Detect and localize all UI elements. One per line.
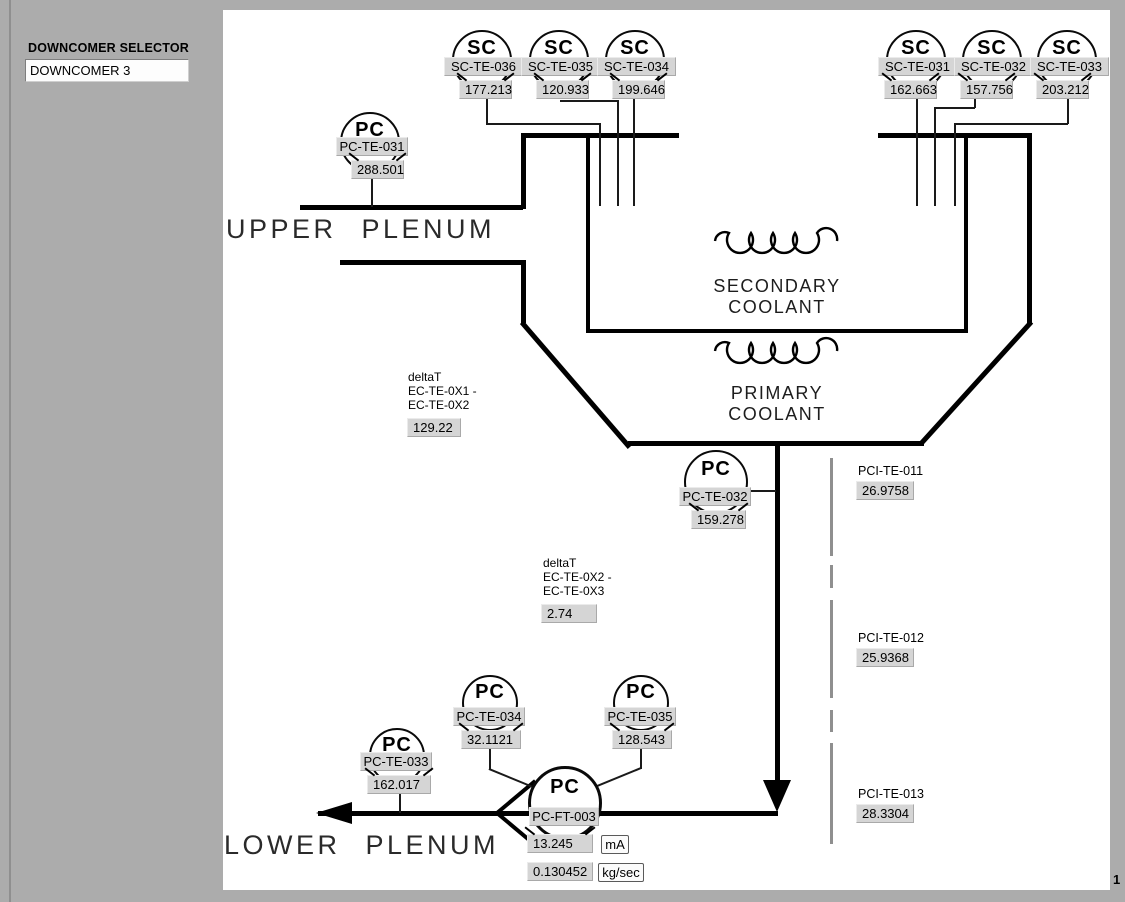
delta-t-2-line1: EC-TE-0X2 - [543,570,612,584]
wire-pc-te-034 [489,749,491,769]
primary-coolant-label: PRIMARY COOLANT [697,383,857,425]
wire-sc-te-036 [486,123,600,125]
sensor-value-pc-te-034: 32.1121 [461,730,521,749]
coil-secondary-icon [710,226,842,266]
sensor-tag-pc-ft-003: PC-FT-003 [529,807,599,826]
delta-t-1-label: deltaT EC-TE-0X1 - EC-TE-0X2 [408,370,477,412]
delta-t-1-line2: EC-TE-0X2 [408,398,477,412]
sensor-tag-sc-te-031: SC-TE-031 [878,57,957,76]
sensor-value-pc-ft-003-flow: 0.130452 [527,862,593,881]
wire-sc-te-033 [954,123,956,206]
sensor-symbol: PC [528,776,602,799]
delta-t-2-title: deltaT [543,556,612,570]
secondary-coolant-line1: SECONDARY [697,276,857,297]
primary-coolant-line2: COOLANT [697,404,857,425]
delta-t-2-value: 2.74 [541,604,597,623]
flow-arrow-down-icon [763,780,791,812]
pci-te-012-tag: PCI-TE-012 [858,631,924,645]
hx-inner-right [964,133,968,333]
wire-sc-te-036 [486,99,488,124]
hx-inner-left [586,133,590,333]
sensor-value-pc-te-033: 162.017 [367,775,431,794]
downcomer-selector-label: DOWNCOMER SELECTOR [28,41,189,55]
sensor-symbol: PC [684,458,748,481]
pci-te-013-tag: PCI-TE-013 [858,787,924,801]
wire-pc-te-035 [640,749,642,769]
wire-sc-te-036 [599,123,601,206]
sensor-tag-sc-te-033: SC-TE-033 [1030,57,1109,76]
sensor-value-pc-te-032: 159.278 [691,510,746,529]
wire-pc-te-033 [399,794,401,813]
pci-divider-segment [830,600,833,698]
sensor-tag-pc-te-033: PC-TE-033 [360,752,432,771]
sensor-tag-sc-te-032: SC-TE-032 [954,57,1033,76]
coil-primary-icon [710,336,842,376]
sensor-value-pc-ft-003-current: 13.245 [527,834,593,853]
sensor-value-sc-te-034: 199.646 [612,80,665,99]
wire-sc-te-035 [617,100,619,206]
sensor-symbol: PC [613,681,669,704]
delta-t-2-label: deltaT EC-TE-0X2 - EC-TE-0X3 [543,556,612,598]
wire-pc-te-032 [748,490,776,492]
pipe-right-wall [1027,133,1032,325]
delta-t-2-line2: EC-TE-0X3 [543,584,612,598]
sensor-tag-pc-te-031: PC-TE-031 [336,137,408,156]
sensor-tag-pc-te-034: PC-TE-034 [453,707,525,726]
page-number: 1 [1113,872,1120,887]
wire-sc-te-034 [633,99,635,206]
pipe-upper-plenum-bottom [340,260,523,265]
wire-sc-te-032 [934,107,936,206]
wire-sc-te-033 [1067,99,1069,124]
pci-te-011-tag: PCI-TE-011 [858,464,923,478]
unit-ma: mA [601,835,629,854]
secondary-coolant-line2: COOLANT [697,297,857,318]
sensor-tag-pc-te-035: PC-TE-035 [604,707,676,726]
pipe-upper-plenum-top [300,205,523,210]
unit-kg-sec: kg/sec [598,863,644,882]
pipe-left-riser [521,133,526,209]
hx-inner-bottom [586,329,967,333]
pci-divider-segment [830,458,833,556]
lower-plenum-label: LOWER PLENUM [224,830,499,861]
delta-t-1-value: 129.22 [407,418,461,437]
delta-t-1-line1: EC-TE-0X1 - [408,384,477,398]
pci-te-012-value: 25.9368 [856,648,914,667]
pci-te-013-value: 28.3304 [856,804,914,823]
sensor-value-sc-te-033: 203.212 [1036,80,1089,99]
window-edge-line [9,0,11,902]
secondary-coolant-label: SECONDARY COOLANT [697,276,857,318]
flow-arrow-left-icon [316,802,352,824]
upper-plenum-label: UPPER PLENUM [226,214,495,245]
sensor-value-pc-te-035: 128.543 [612,730,672,749]
primary-coolant-line1: PRIMARY [697,383,857,404]
wire-sc-te-033 [954,123,1068,125]
hmi-window: DOWNCOMER SELECTOR DOWNCOMER 3 PCI-TE-01… [0,0,1125,902]
pipe-outlet-vertical [775,443,780,783]
wire-sc-te-035 [560,100,618,102]
sensor-value-sc-te-032: 157.756 [960,80,1013,99]
sensor-value-sc-te-035: 120.933 [536,80,589,99]
sensor-value-sc-te-036: 177.213 [459,80,512,99]
delta-t-1-title: deltaT [408,370,477,384]
sensor-symbol: PC [462,681,518,704]
wire-sc-te-032 [934,107,975,109]
pipe-left-wall [521,260,526,323]
wire-pc-te-031 [371,179,373,207]
sensor-value-pc-te-031: 288.501 [351,160,404,179]
pci-divider-dash [830,565,833,588]
pci-divider-dash [830,710,833,732]
downcomer-selector-input[interactable]: DOWNCOMER 3 [25,59,189,82]
sensor-value-sc-te-031: 162.663 [884,80,937,99]
wire-sc-te-031 [916,99,918,206]
pci-divider-segment [830,743,833,844]
pci-te-011-value: 26.9758 [856,481,914,500]
